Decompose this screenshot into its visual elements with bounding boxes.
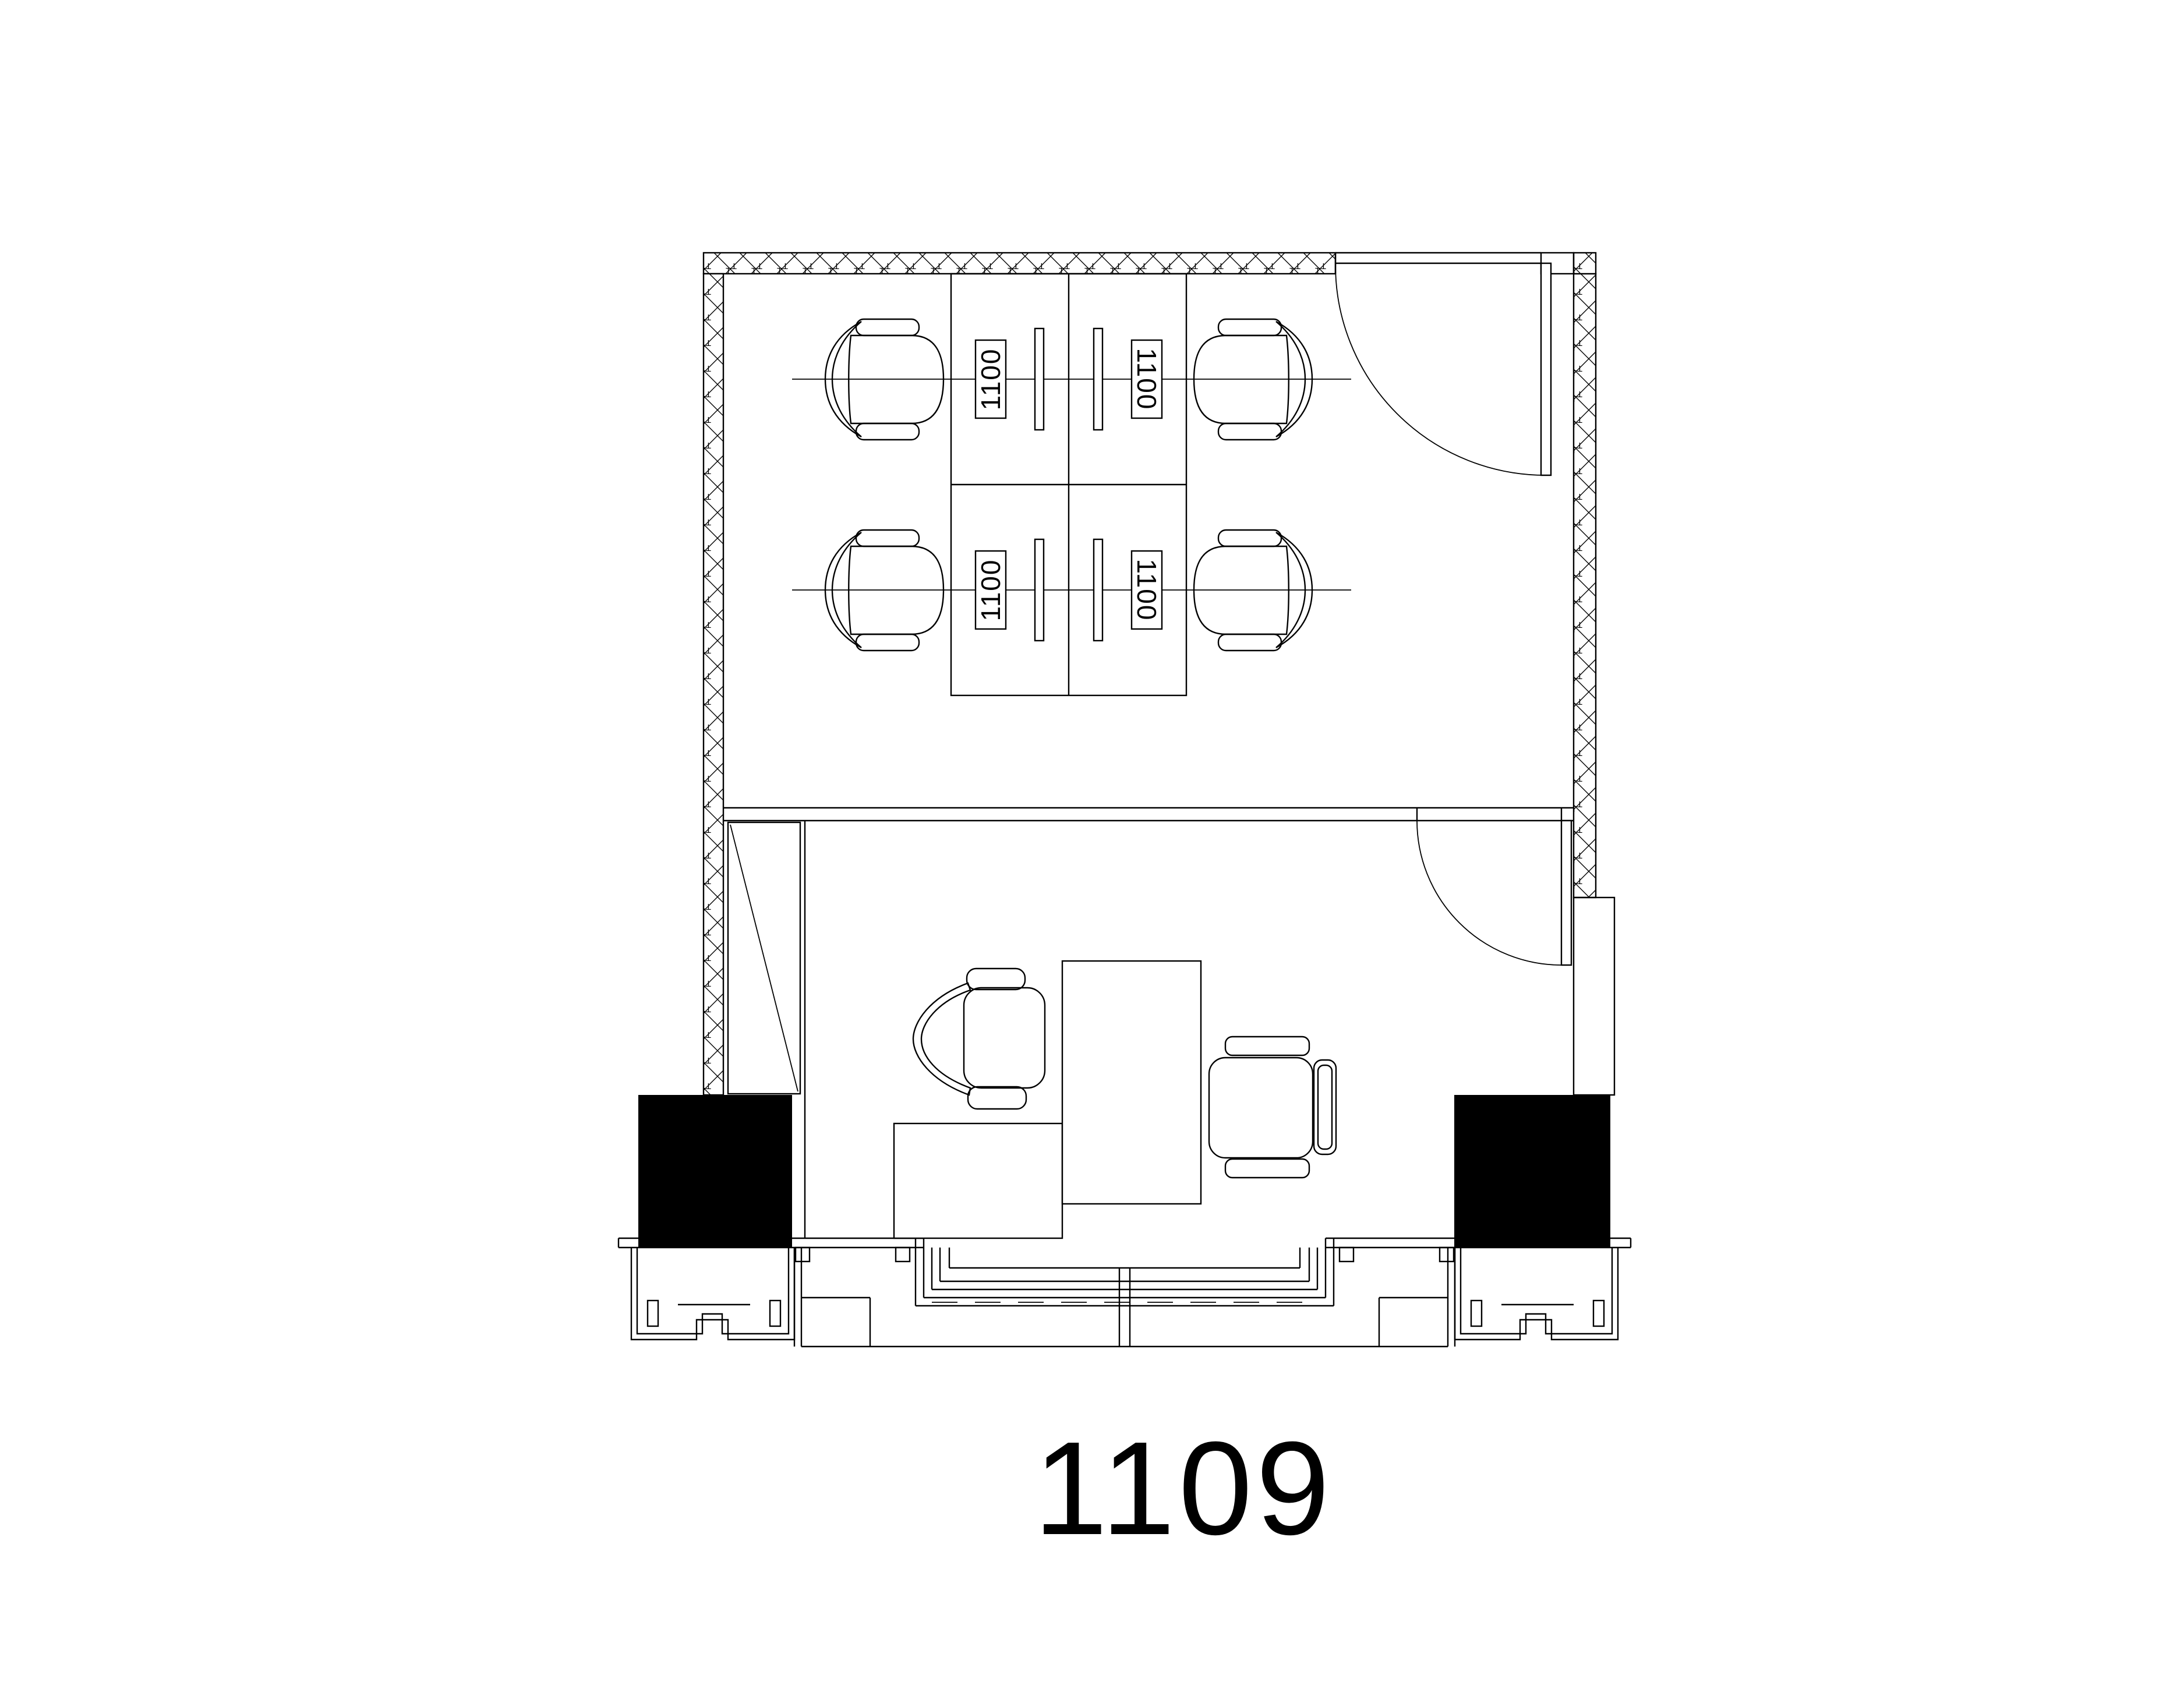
workstation-label: 1100 — [1132, 559, 1162, 621]
column-left — [638, 1095, 792, 1248]
floor-plan-drawing: T T — [0, 0, 2184, 1689]
floor-plan-page: T T — [0, 0, 2184, 1689]
workstation-label: 1100 — [976, 559, 1006, 621]
wall-left — [704, 274, 723, 1095]
door-leaf — [1561, 821, 1571, 965]
privacy-screen — [1094, 539, 1102, 641]
column-right — [1454, 1095, 1610, 1248]
door-leaf — [1541, 263, 1551, 475]
privacy-screen — [1094, 328, 1102, 430]
workstation-label: 1100 — [976, 348, 1006, 411]
privacy-screen — [1035, 539, 1044, 641]
workstation-label: 1100 — [1132, 348, 1162, 411]
wall-top — [704, 253, 1335, 274]
plan-number: 1109 — [1034, 1415, 1333, 1563]
privacy-screen — [1035, 328, 1044, 430]
desk-return — [894, 1123, 1062, 1238]
executive-desk — [1062, 961, 1201, 1204]
wall-block-top-right — [1574, 253, 1596, 274]
wall-right — [1574, 274, 1596, 897]
